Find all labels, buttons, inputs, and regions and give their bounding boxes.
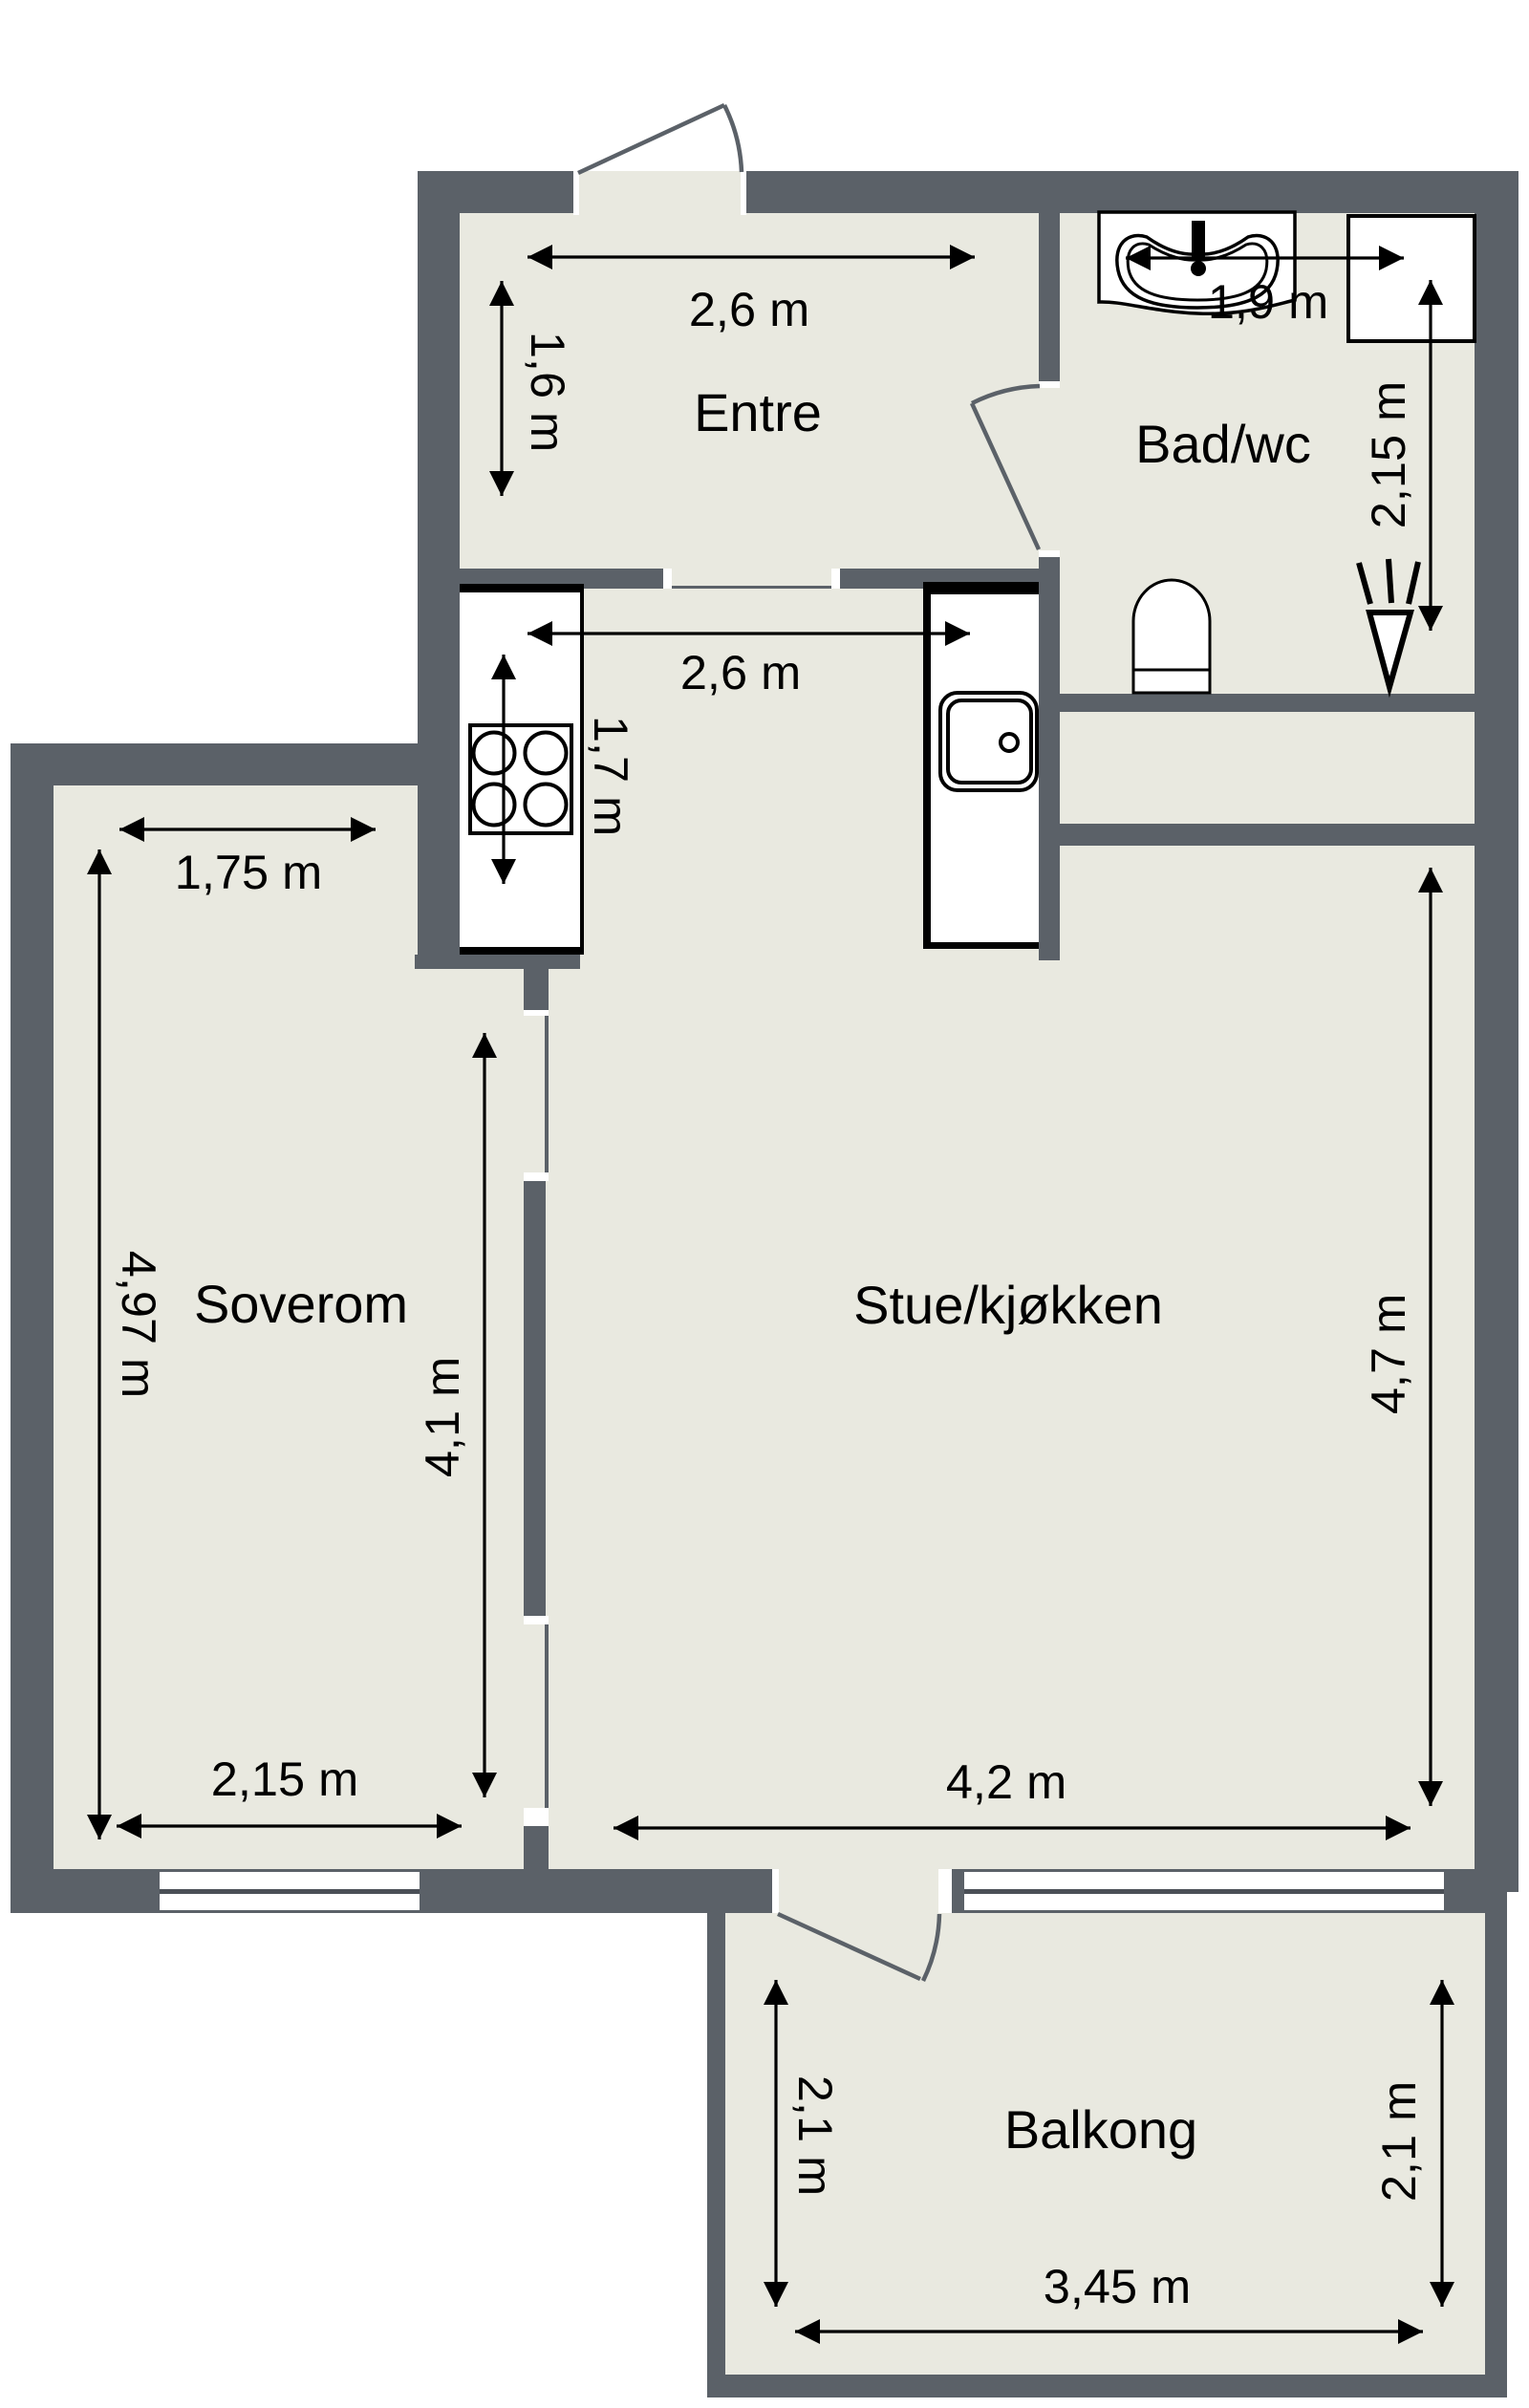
svg-text:Soverom: Soverom bbox=[194, 1274, 408, 1334]
svg-text:4,7 m: 4,7 m bbox=[1361, 1294, 1415, 1414]
svg-text:1,6 m: 1,6 m bbox=[521, 332, 575, 452]
svg-text:4,1 m: 4,1 m bbox=[415, 1357, 469, 1477]
svg-text:2,15 m: 2,15 m bbox=[211, 1752, 358, 1806]
svg-text:Entre: Entre bbox=[694, 382, 822, 442]
svg-text:1,7 m: 1,7 m bbox=[584, 716, 638, 836]
svg-text:Bad/wc: Bad/wc bbox=[1135, 414, 1311, 474]
svg-text:2,6 m: 2,6 m bbox=[689, 282, 809, 336]
svg-text:4,97 m: 4,97 m bbox=[112, 1251, 166, 1398]
svg-text:3,45 m: 3,45 m bbox=[1044, 2259, 1191, 2313]
svg-text:Balkong: Balkong bbox=[1004, 2099, 1197, 2160]
svg-text:2,1 m: 2,1 m bbox=[1371, 2081, 1426, 2202]
svg-text:1,75 m: 1,75 m bbox=[175, 845, 322, 899]
svg-text:2,1 m: 2,1 m bbox=[788, 2075, 843, 2196]
svg-text:2,6 m: 2,6 m bbox=[680, 645, 801, 699]
svg-text:Stue/kjøkken: Stue/kjøkken bbox=[853, 1275, 1163, 1335]
svg-text:1,9 m: 1,9 m bbox=[1208, 274, 1328, 329]
svg-text:4,2 m: 4,2 m bbox=[946, 1754, 1066, 1809]
svg-text:2,15 m: 2,15 m bbox=[1361, 381, 1415, 528]
